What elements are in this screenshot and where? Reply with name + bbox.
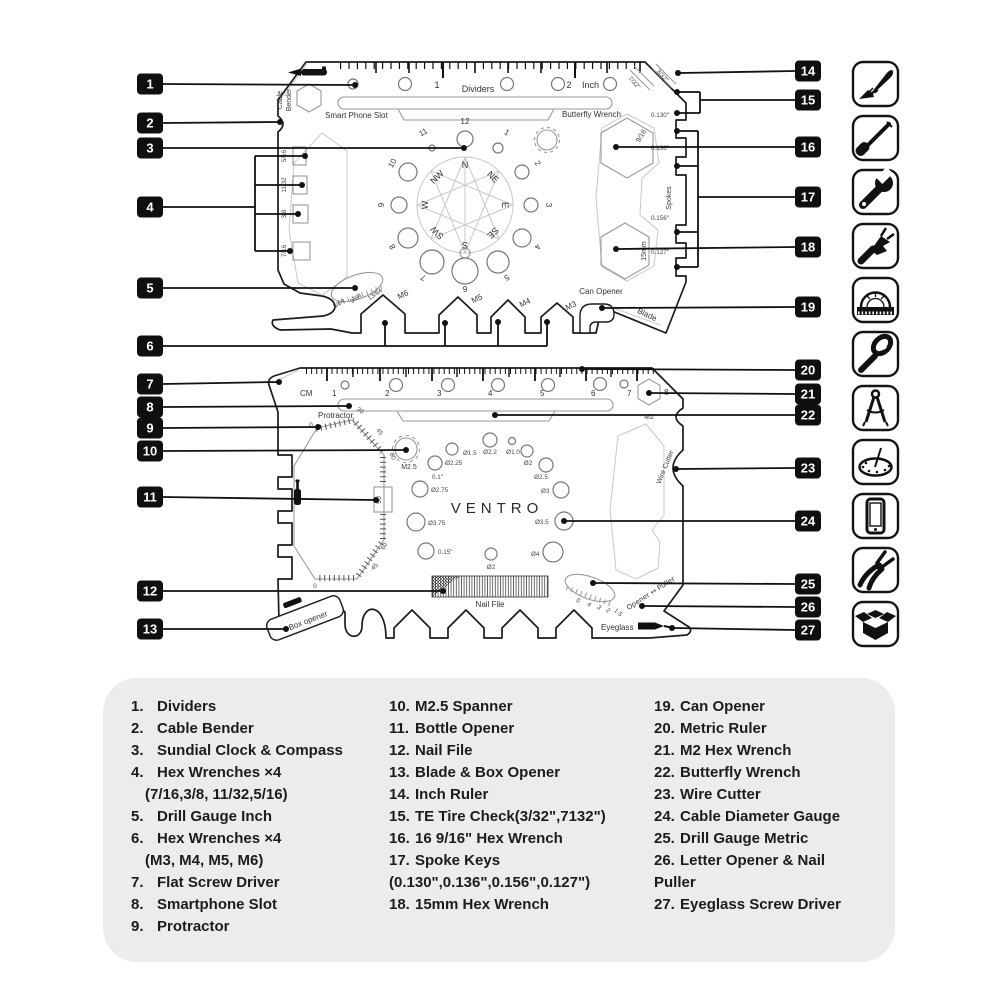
compass-dir: S	[462, 240, 468, 250]
legend-item: 26.Letter Opener & Nail	[654, 850, 882, 872]
can-opener-label: Can Opener	[579, 287, 623, 296]
compass-dir: E	[500, 202, 510, 208]
svg-text:13: 13	[143, 622, 157, 637]
brand-logo: VENTRO	[451, 500, 544, 517]
knife-icon	[853, 62, 898, 106]
card-bottom: CM 1 2 3 4 5 6 7 8 M2 Protractor 0 30	[265, 368, 691, 642]
spoke-size-label: 0.127"	[651, 249, 669, 256]
svg-text:10: 10	[143, 444, 157, 459]
multitool-diagram-page: 1 2 Inch Dividers Cable Bender Smart Pho…	[0, 0, 1000, 1000]
dividers-label: Dividers	[462, 84, 495, 94]
legend-item: 22.Butterfly Wrench	[654, 762, 882, 784]
card-top: 1 2 Inch Dividers Cable Bender Smart Pho…	[272, 62, 686, 333]
legend-item-cont: Puller	[654, 872, 882, 894]
dia-label: Ø3	[541, 488, 550, 495]
wrench-icon	[853, 167, 898, 214]
svg-text:19: 19	[801, 300, 815, 315]
svg-text:23: 23	[801, 461, 815, 476]
ruler-unit: Inch	[582, 80, 599, 90]
legend-item: 9.Protractor	[131, 916, 389, 938]
legend-item: 25.Drill Gauge Metric	[654, 828, 882, 850]
svg-text:27: 27	[801, 623, 815, 638]
clock-number: 12	[461, 117, 470, 126]
svg-text:9: 9	[146, 421, 153, 436]
legend-item: 7.Flat Screw Driver	[131, 872, 389, 894]
legend-item: 16.16 9/16" Hex Wrench	[389, 828, 651, 850]
compass-dir: N	[462, 160, 469, 170]
legend-item: 8.Smartphone Slot	[131, 894, 389, 916]
dia-label: Ø2	[487, 564, 496, 571]
dia-label: Ø2.5	[534, 474, 548, 481]
svg-text:18: 18	[801, 240, 815, 255]
bottle-opener-icon	[853, 332, 898, 376]
svg-text:3: 3	[146, 141, 153, 156]
legend-item: 13.Blade & Box Opener	[389, 762, 651, 784]
slot-label: Smart Phone Slot	[325, 111, 388, 120]
legend-item: 19.Can Opener	[654, 696, 882, 718]
ruler-number: 6	[591, 389, 596, 398]
callout-27: 27	[669, 620, 821, 641]
clock-number: 6	[462, 284, 467, 293]
svg-text:16: 16	[801, 140, 815, 155]
compass-dir: W	[420, 200, 430, 209]
svg-text:14: 14	[801, 64, 816, 79]
legend-item: 15.TE Tire Check(3/32",7132")	[389, 806, 651, 828]
nail-file-label: Nail File	[476, 600, 505, 609]
spoke-size-label: 0.136"	[651, 145, 669, 152]
legend-item-cont: (0.130",0.136",0.156",0.127")	[389, 872, 651, 894]
legend-item: 10.M2.5 Spanner	[389, 696, 651, 718]
dividers-compass-icon	[853, 386, 898, 430]
can-opener-icon	[853, 224, 898, 268]
legend-item: 27.Eyeglass Screw Driver	[654, 894, 882, 916]
svg-text:22: 22	[801, 408, 815, 423]
svg-text:6: 6	[146, 339, 153, 354]
svg-text:26: 26	[801, 600, 815, 615]
butterfly-label: Butterfly Wrench	[562, 110, 621, 119]
legend-item: 3.Sundial Clock & Compass	[131, 740, 389, 762]
callout-7: 7	[137, 374, 282, 395]
pliers-icon	[853, 548, 898, 592]
legend-item-cont: (7/16,3/8, 11/32,5/16)	[131, 784, 389, 806]
callout-14: 14	[675, 61, 821, 82]
legend-item: 24.Cable Diameter Gauge	[654, 806, 882, 828]
ruler-number: 7	[627, 389, 632, 398]
svg-text:7: 7	[146, 377, 153, 392]
svg-text:11: 11	[143, 490, 157, 505]
dia-label: Ø3.5	[535, 519, 549, 526]
legend-item: 2.Cable Bender	[131, 718, 389, 740]
legend-item: 12.Nail File	[389, 740, 651, 762]
spokes-label: Spokes	[666, 186, 673, 210]
smartphone-icon	[853, 494, 898, 538]
legend-panel: 1.Dividers 2.Cable Bender 3.Sundial Cloc…	[103, 678, 895, 962]
dia-label: Ø1.5	[463, 450, 477, 457]
hex-15mm-label: 15mm	[641, 241, 648, 261]
svg-text:15: 15	[801, 93, 815, 108]
callout-23: 23	[673, 458, 821, 479]
ruler-number: 1	[332, 389, 337, 398]
dia-label: 0.1"	[432, 474, 443, 481]
callout-2: 2	[137, 113, 283, 134]
svg-text:4: 4	[146, 200, 154, 215]
legend-item: 6.Hex Wrenches ×4	[131, 828, 389, 850]
eyeglass-label: Eyeglass	[601, 623, 633, 632]
dia-label: Ø1.0	[506, 449, 520, 456]
legend-item: 4.Hex Wrenches ×4	[131, 762, 389, 784]
svg-text:5: 5	[146, 281, 153, 296]
legend-item: 23.Wire Cutter	[654, 784, 882, 806]
callout-13: 13	[137, 619, 289, 640]
legend-column-2: 10.M2.5 Spanner 11.Bottle Opener 12.Nail…	[389, 696, 651, 916]
legend-item: 21.M2 Hex Wrench	[654, 740, 882, 762]
legend-item: 18.15mm Hex Wrench	[389, 894, 651, 916]
svg-text:24: 24	[801, 514, 816, 529]
dia-label: Ø2.75	[431, 487, 449, 494]
clock-number: 9	[377, 202, 386, 207]
protractor-icon	[853, 278, 898, 322]
dia-label: Ø4	[531, 551, 540, 558]
spoke-size-label: 0.156"	[651, 215, 669, 222]
svg-text:25: 25	[801, 577, 815, 592]
ruler-number: 2	[566, 80, 571, 90]
sundial-clock-icon	[853, 440, 898, 484]
cable-bender-label: Bender	[286, 88, 293, 111]
m25-label: M2.5	[401, 464, 417, 471]
dia-label: Ø2	[524, 460, 533, 467]
legend-column-1: 1.Dividers 2.Cable Bender 3.Sundial Cloc…	[131, 696, 389, 938]
legend-item-cont: (M3, M4, M5, M6)	[131, 850, 389, 872]
ruler-number: 4	[488, 389, 493, 398]
spoke-size-label: 0.130"	[651, 112, 669, 119]
ruler-number: 1	[434, 80, 439, 90]
legend-item: 17.Spoke Keys	[389, 850, 651, 872]
clock-number: 3	[544, 203, 553, 208]
svg-text:2: 2	[146, 116, 153, 131]
callout-15: 15	[674, 89, 821, 116]
legend-item: 11.Bottle Opener	[389, 718, 651, 740]
legend-item: 1.Dividers	[131, 696, 389, 718]
cable-bender-label: Cable	[277, 91, 284, 109]
svg-text:12: 12	[143, 584, 157, 599]
protractor-label: Protractor	[318, 411, 353, 420]
dia-label: Ø2.2	[483, 449, 497, 456]
svg-text:8: 8	[146, 400, 153, 415]
diagram: 1 2 Inch Dividers Cable Bender Smart Pho…	[0, 0, 1000, 668]
legend-item: 5.Drill Gauge Inch	[131, 806, 389, 828]
dia-label: Ø2.25	[445, 460, 463, 467]
feature-icons	[853, 62, 898, 646]
legend-column-3: 19.Can Opener 20.Metric Ruler 21.M2 Hex …	[654, 696, 882, 916]
svg-text:17: 17	[801, 190, 815, 205]
svg-text:20: 20	[801, 363, 815, 378]
degree-label: 0	[309, 422, 313, 429]
screwdriver-icon	[853, 116, 898, 160]
svg-text:1: 1	[146, 77, 153, 92]
dia-label: 0.15"	[438, 549, 453, 556]
ruler-number: 2	[385, 389, 390, 398]
legend-item: 20.Metric Ruler	[654, 718, 882, 740]
degree-label: 0	[313, 583, 317, 590]
ruler-unit: CM	[300, 389, 313, 398]
svg-text:21: 21	[801, 387, 815, 402]
ruler-number: 3	[437, 389, 442, 398]
dia-label: Ø3.75	[428, 520, 446, 527]
open-box-icon	[853, 602, 898, 646]
legend-item: 14.Inch Ruler	[389, 784, 651, 806]
